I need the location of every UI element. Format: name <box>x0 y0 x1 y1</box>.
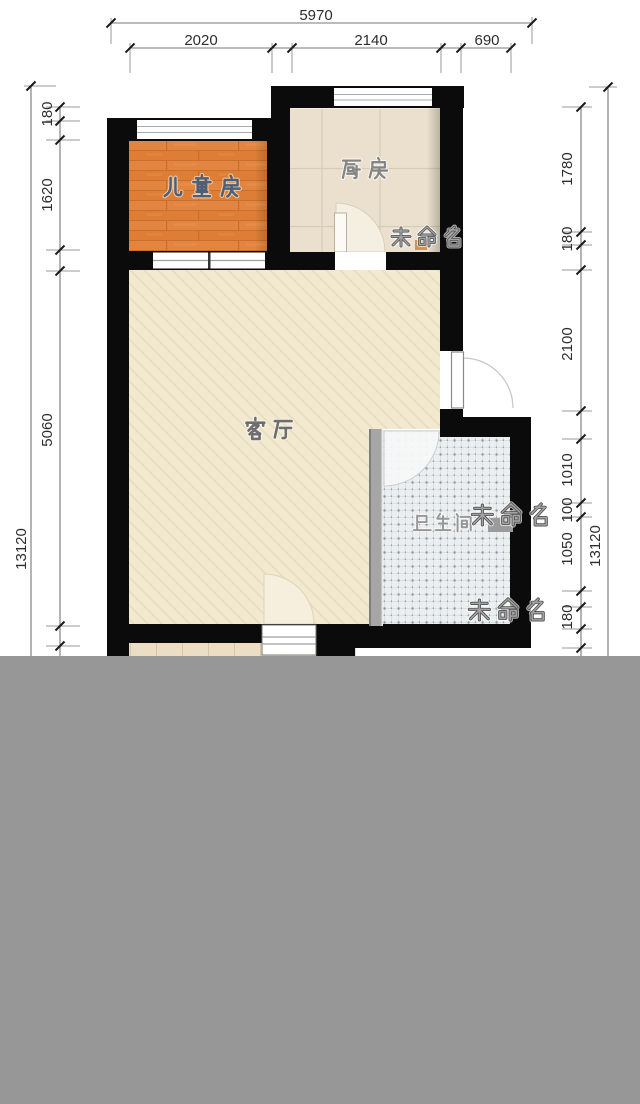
svg-text:13120: 13120 <box>13 528 30 570</box>
svg-text:1620: 1620 <box>39 178 56 211</box>
svg-text:2020: 2020 <box>184 32 217 49</box>
svg-text:690: 690 <box>474 32 499 49</box>
svg-text:180: 180 <box>559 604 576 629</box>
svg-text:2100: 2100 <box>559 327 576 360</box>
svg-text:1010: 1010 <box>559 453 576 486</box>
svg-text:2140: 2140 <box>354 32 387 49</box>
svg-text:180: 180 <box>39 101 56 126</box>
svg-text:1780: 1780 <box>559 152 576 185</box>
svg-text:100: 100 <box>559 497 576 522</box>
svg-text:1050: 1050 <box>559 532 576 565</box>
svg-text:13120: 13120 <box>587 525 604 567</box>
svg-text:180: 180 <box>559 226 576 251</box>
svg-text:5970: 5970 <box>299 7 332 24</box>
svg-text:5060: 5060 <box>39 413 56 446</box>
